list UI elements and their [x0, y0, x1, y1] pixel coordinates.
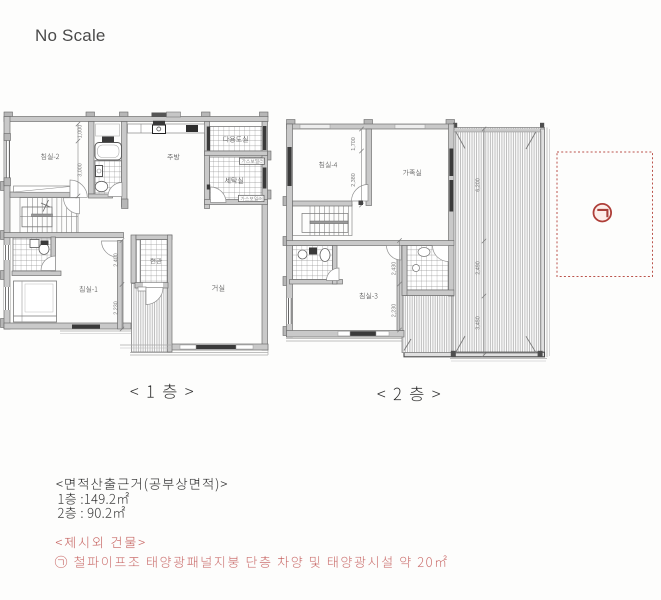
svg-text:1,700: 1,700 [351, 137, 357, 151]
svg-text:2,490: 2,490 [476, 261, 482, 275]
svg-text:3,450: 3,450 [476, 316, 482, 330]
svg-text:2,380: 2,380 [351, 173, 357, 187]
svg-text:2,430: 2,430 [392, 262, 398, 276]
svg-text:1,000: 1,000 [78, 125, 84, 139]
svg-text:2,400: 2,400 [114, 253, 120, 267]
svg-text:2,230: 2,230 [392, 304, 398, 318]
svg-text:2,230: 2,230 [114, 301, 120, 315]
svg-text:6,200: 6,200 [476, 178, 482, 192]
svg-text:3,000: 3,000 [78, 163, 84, 177]
svg-text:No Scale: No Scale [35, 26, 106, 45]
